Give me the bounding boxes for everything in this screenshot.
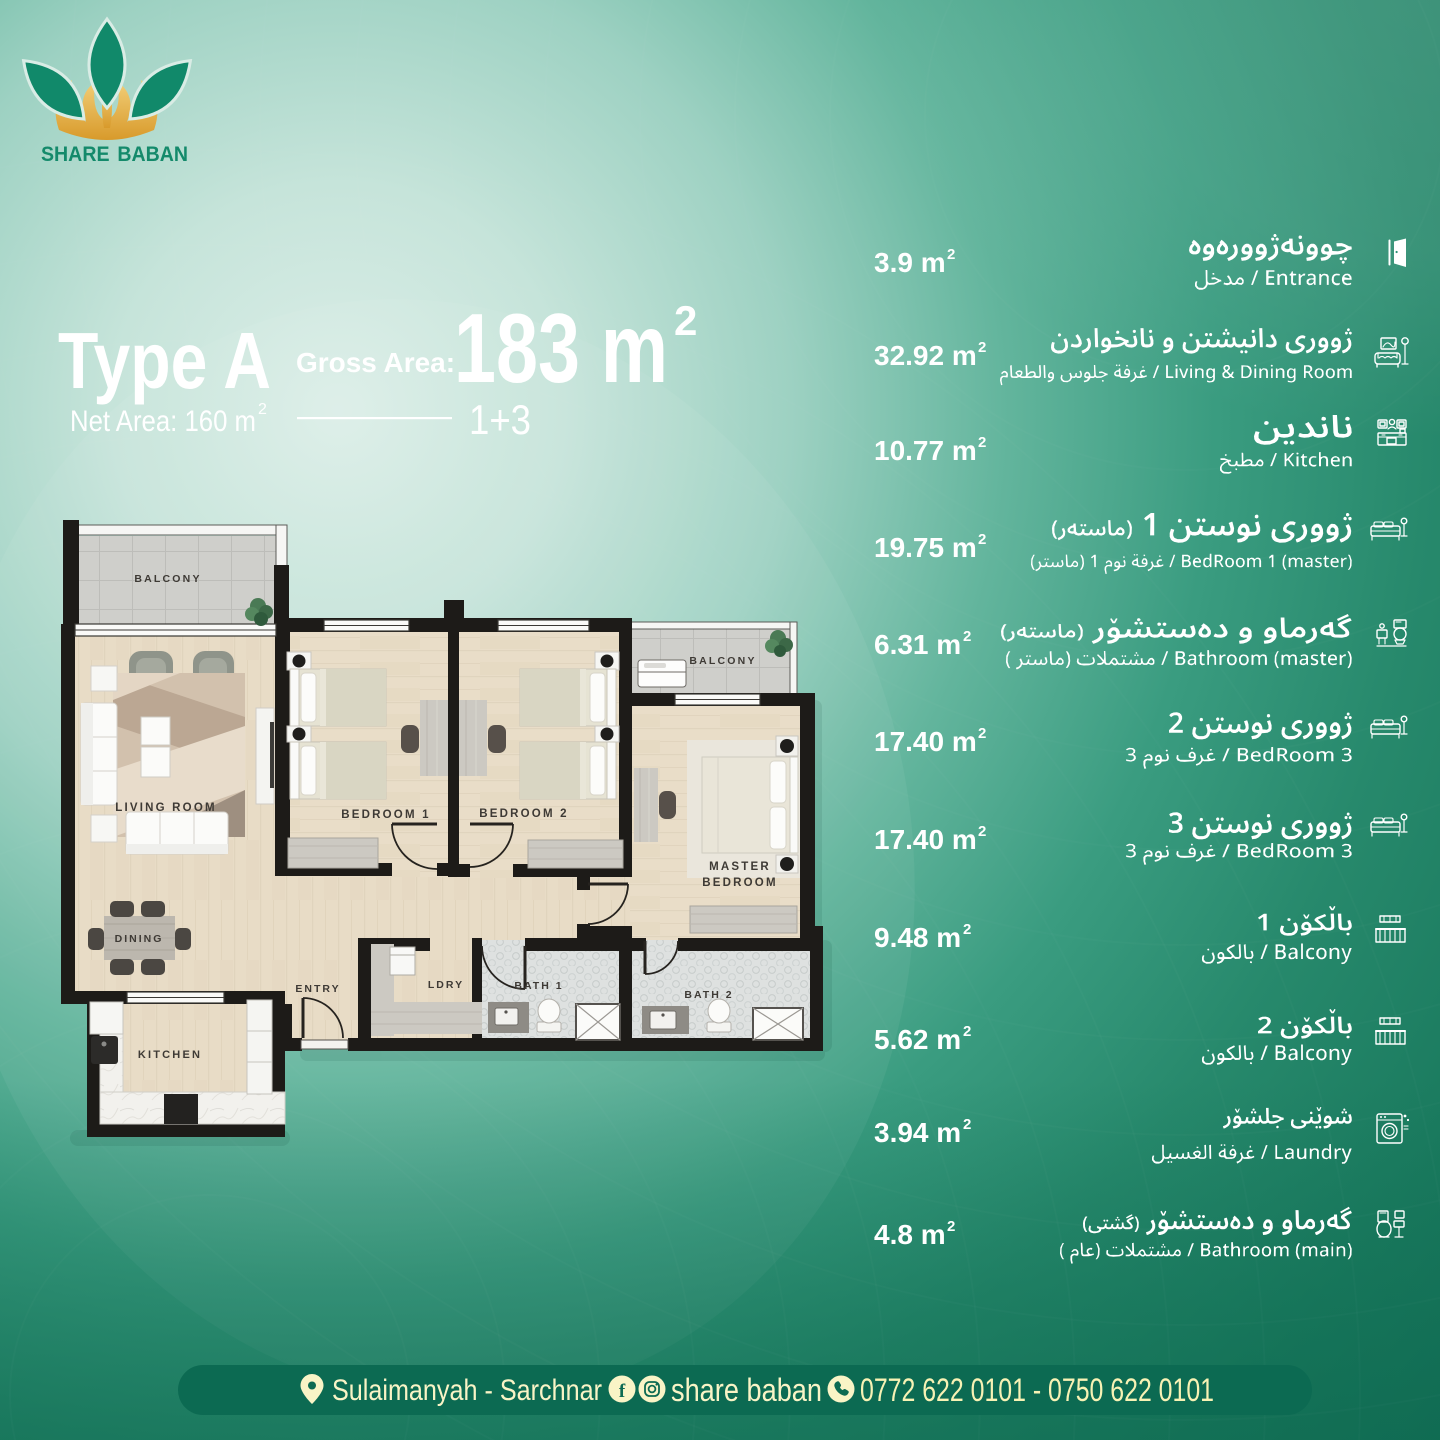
svg-text:2: 2 [947, 246, 955, 263]
svg-text:BEDROOM 2: BEDROOM 2 [479, 808, 568, 820]
svg-text:17.40 m: 17.40 m [874, 824, 977, 855]
svg-text:4.8 m: 4.8 m [874, 1219, 946, 1250]
svg-text:Sulaimanyah - Sarchnar: Sulaimanyah - Sarchnar [332, 1374, 602, 1407]
svg-text:BATH 1: BATH 1 [514, 980, 563, 992]
svg-text:BALCONY: BALCONY [689, 655, 756, 667]
svg-text:BEDROOM: BEDROOM [702, 877, 777, 889]
svg-text:32.92 m: 32.92 m [874, 340, 977, 371]
svg-text:2: 2 [978, 531, 986, 548]
svg-text:2: 2 [963, 628, 971, 645]
svg-text:2: 2 [978, 434, 986, 451]
svg-text:BEDROOM 1: BEDROOM 1 [341, 809, 430, 821]
svg-text:BATH 2: BATH 2 [684, 989, 733, 1001]
svg-text:LDRY: LDRY [428, 979, 464, 991]
svg-text:2: 2 [978, 823, 986, 840]
svg-text:BALCONY: BALCONY [134, 573, 201, 585]
svg-text:Type A: Type A [58, 316, 271, 405]
svg-text:183 m: 183 m [454, 293, 668, 403]
svg-text:3.9 m: 3.9 m [874, 247, 946, 278]
svg-text:KITCHEN: KITCHEN [138, 1049, 202, 1061]
svg-text:3.94 m: 3.94 m [874, 1117, 961, 1148]
svg-text:2: 2 [963, 1023, 971, 1040]
svg-text:10.77 m: 10.77 m [874, 435, 977, 466]
svg-text:1+3: 1+3 [469, 396, 531, 443]
svg-text:19.75 m: 19.75 m [874, 532, 977, 563]
svg-text:5.62 m: 5.62 m [874, 1024, 961, 1055]
svg-text:MASTER: MASTER [709, 861, 771, 873]
svg-text:2: 2 [978, 339, 986, 356]
svg-text:SHARE BABAN: SHARE BABAN [41, 143, 188, 166]
svg-text:f: f [619, 1381, 626, 1402]
svg-text:share baban: share baban [671, 1372, 822, 1408]
svg-text:2: 2 [963, 921, 971, 938]
svg-text:Gross Area:: Gross Area: [296, 347, 455, 378]
svg-text:2: 2 [963, 1116, 971, 1133]
svg-text:DINING: DINING [115, 933, 164, 945]
svg-text:LIVING ROOM: LIVING ROOM [115, 802, 217, 814]
svg-text:17.40 m: 17.40 m [874, 726, 977, 757]
svg-text:0772 622 0101 - 0750 622 0101: 0772 622 0101 - 0750 622 0101 [860, 1372, 1214, 1408]
svg-text:ENTRY: ENTRY [295, 983, 340, 995]
svg-text:2: 2 [258, 401, 267, 418]
svg-text:2: 2 [978, 725, 986, 742]
svg-text:9.48 m: 9.48 m [874, 922, 961, 953]
svg-text:Net Area: 160 m: Net Area: 160 m [70, 405, 256, 438]
svg-text:6.31 m: 6.31 m [874, 629, 961, 660]
svg-text:2: 2 [947, 1218, 955, 1235]
svg-text:2: 2 [674, 297, 697, 344]
